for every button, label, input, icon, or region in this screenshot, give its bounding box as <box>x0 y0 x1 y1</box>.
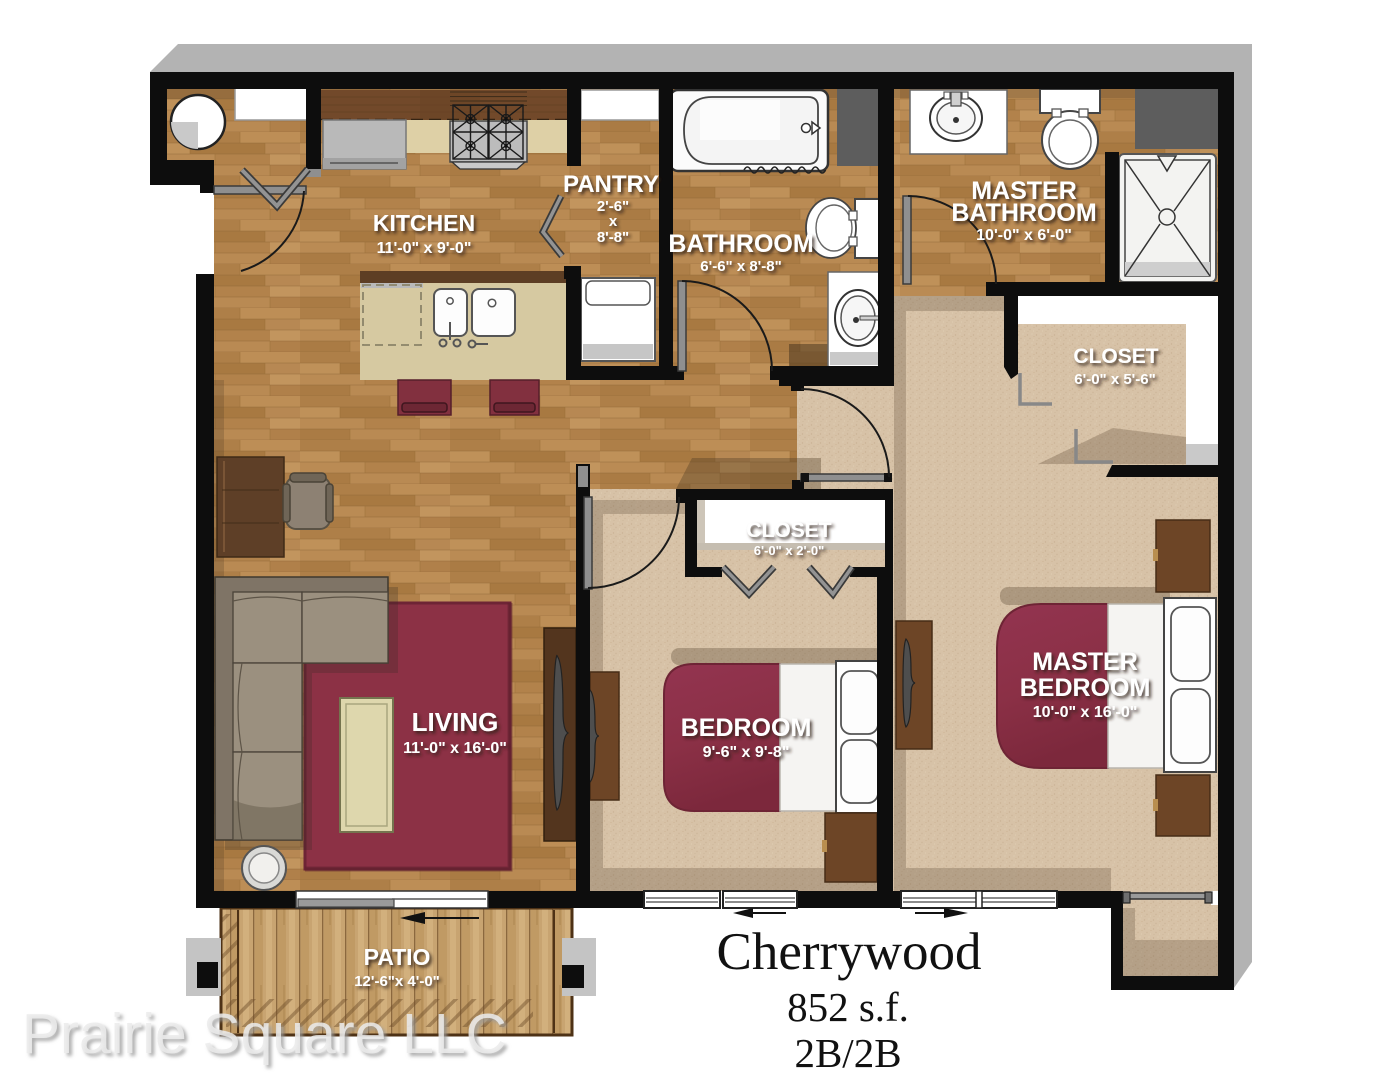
svg-text:BEDROOM: BEDROOM <box>681 714 812 742</box>
svg-text:12'-6"x 4'-0": 12'-6"x 4'-0" <box>354 973 440 990</box>
svg-text:2B/2B: 2B/2B <box>794 1030 901 1076</box>
svg-text:9'-6" x 9'-8": 9'-6" x 9'-8" <box>703 744 790 761</box>
svg-text:BATHROOM: BATHROOM <box>951 199 1096 227</box>
svg-text:LIVING: LIVING <box>412 707 499 737</box>
svg-text:10'-0" x 6'-0": 10'-0" x 6'-0" <box>976 227 1072 244</box>
svg-text:PANTRY: PANTRY <box>563 171 659 198</box>
svg-text:6'-0" x 5'-6": 6'-0" x 5'-6" <box>1074 371 1155 388</box>
svg-text:PATIO: PATIO <box>364 944 431 970</box>
svg-text:MASTER: MASTER <box>1032 648 1138 676</box>
svg-text:BEDROOM: BEDROOM <box>1020 674 1151 702</box>
svg-text:6'-0" x 2'-0": 6'-0" x 2'-0" <box>754 543 825 558</box>
svg-text:KITCHEN: KITCHEN <box>373 210 475 236</box>
svg-text:CLOSET: CLOSET <box>746 519 831 542</box>
svg-text:CLOSET: CLOSET <box>1073 345 1158 368</box>
svg-text:BATHROOM: BATHROOM <box>668 230 813 258</box>
svg-text:11'-0" x 9'-0": 11'-0" x 9'-0" <box>377 240 472 257</box>
svg-text:11'-0" x 16'-0": 11'-0" x 16'-0" <box>403 740 507 757</box>
svg-text:10'-0" x 16'-0": 10'-0" x 16'-0" <box>1033 704 1138 721</box>
svg-text:8'-8": 8'-8" <box>597 229 629 246</box>
svg-text:6'-6" x 8'-8": 6'-6" x 8'-8" <box>700 258 781 275</box>
svg-text:Cherrywood: Cherrywood <box>717 923 982 981</box>
svg-text:Prairie Square LLC: Prairie Square LLC <box>22 1002 507 1066</box>
svg-text:x: x <box>609 213 618 230</box>
svg-text:852 s.f.: 852 s.f. <box>787 984 909 1030</box>
